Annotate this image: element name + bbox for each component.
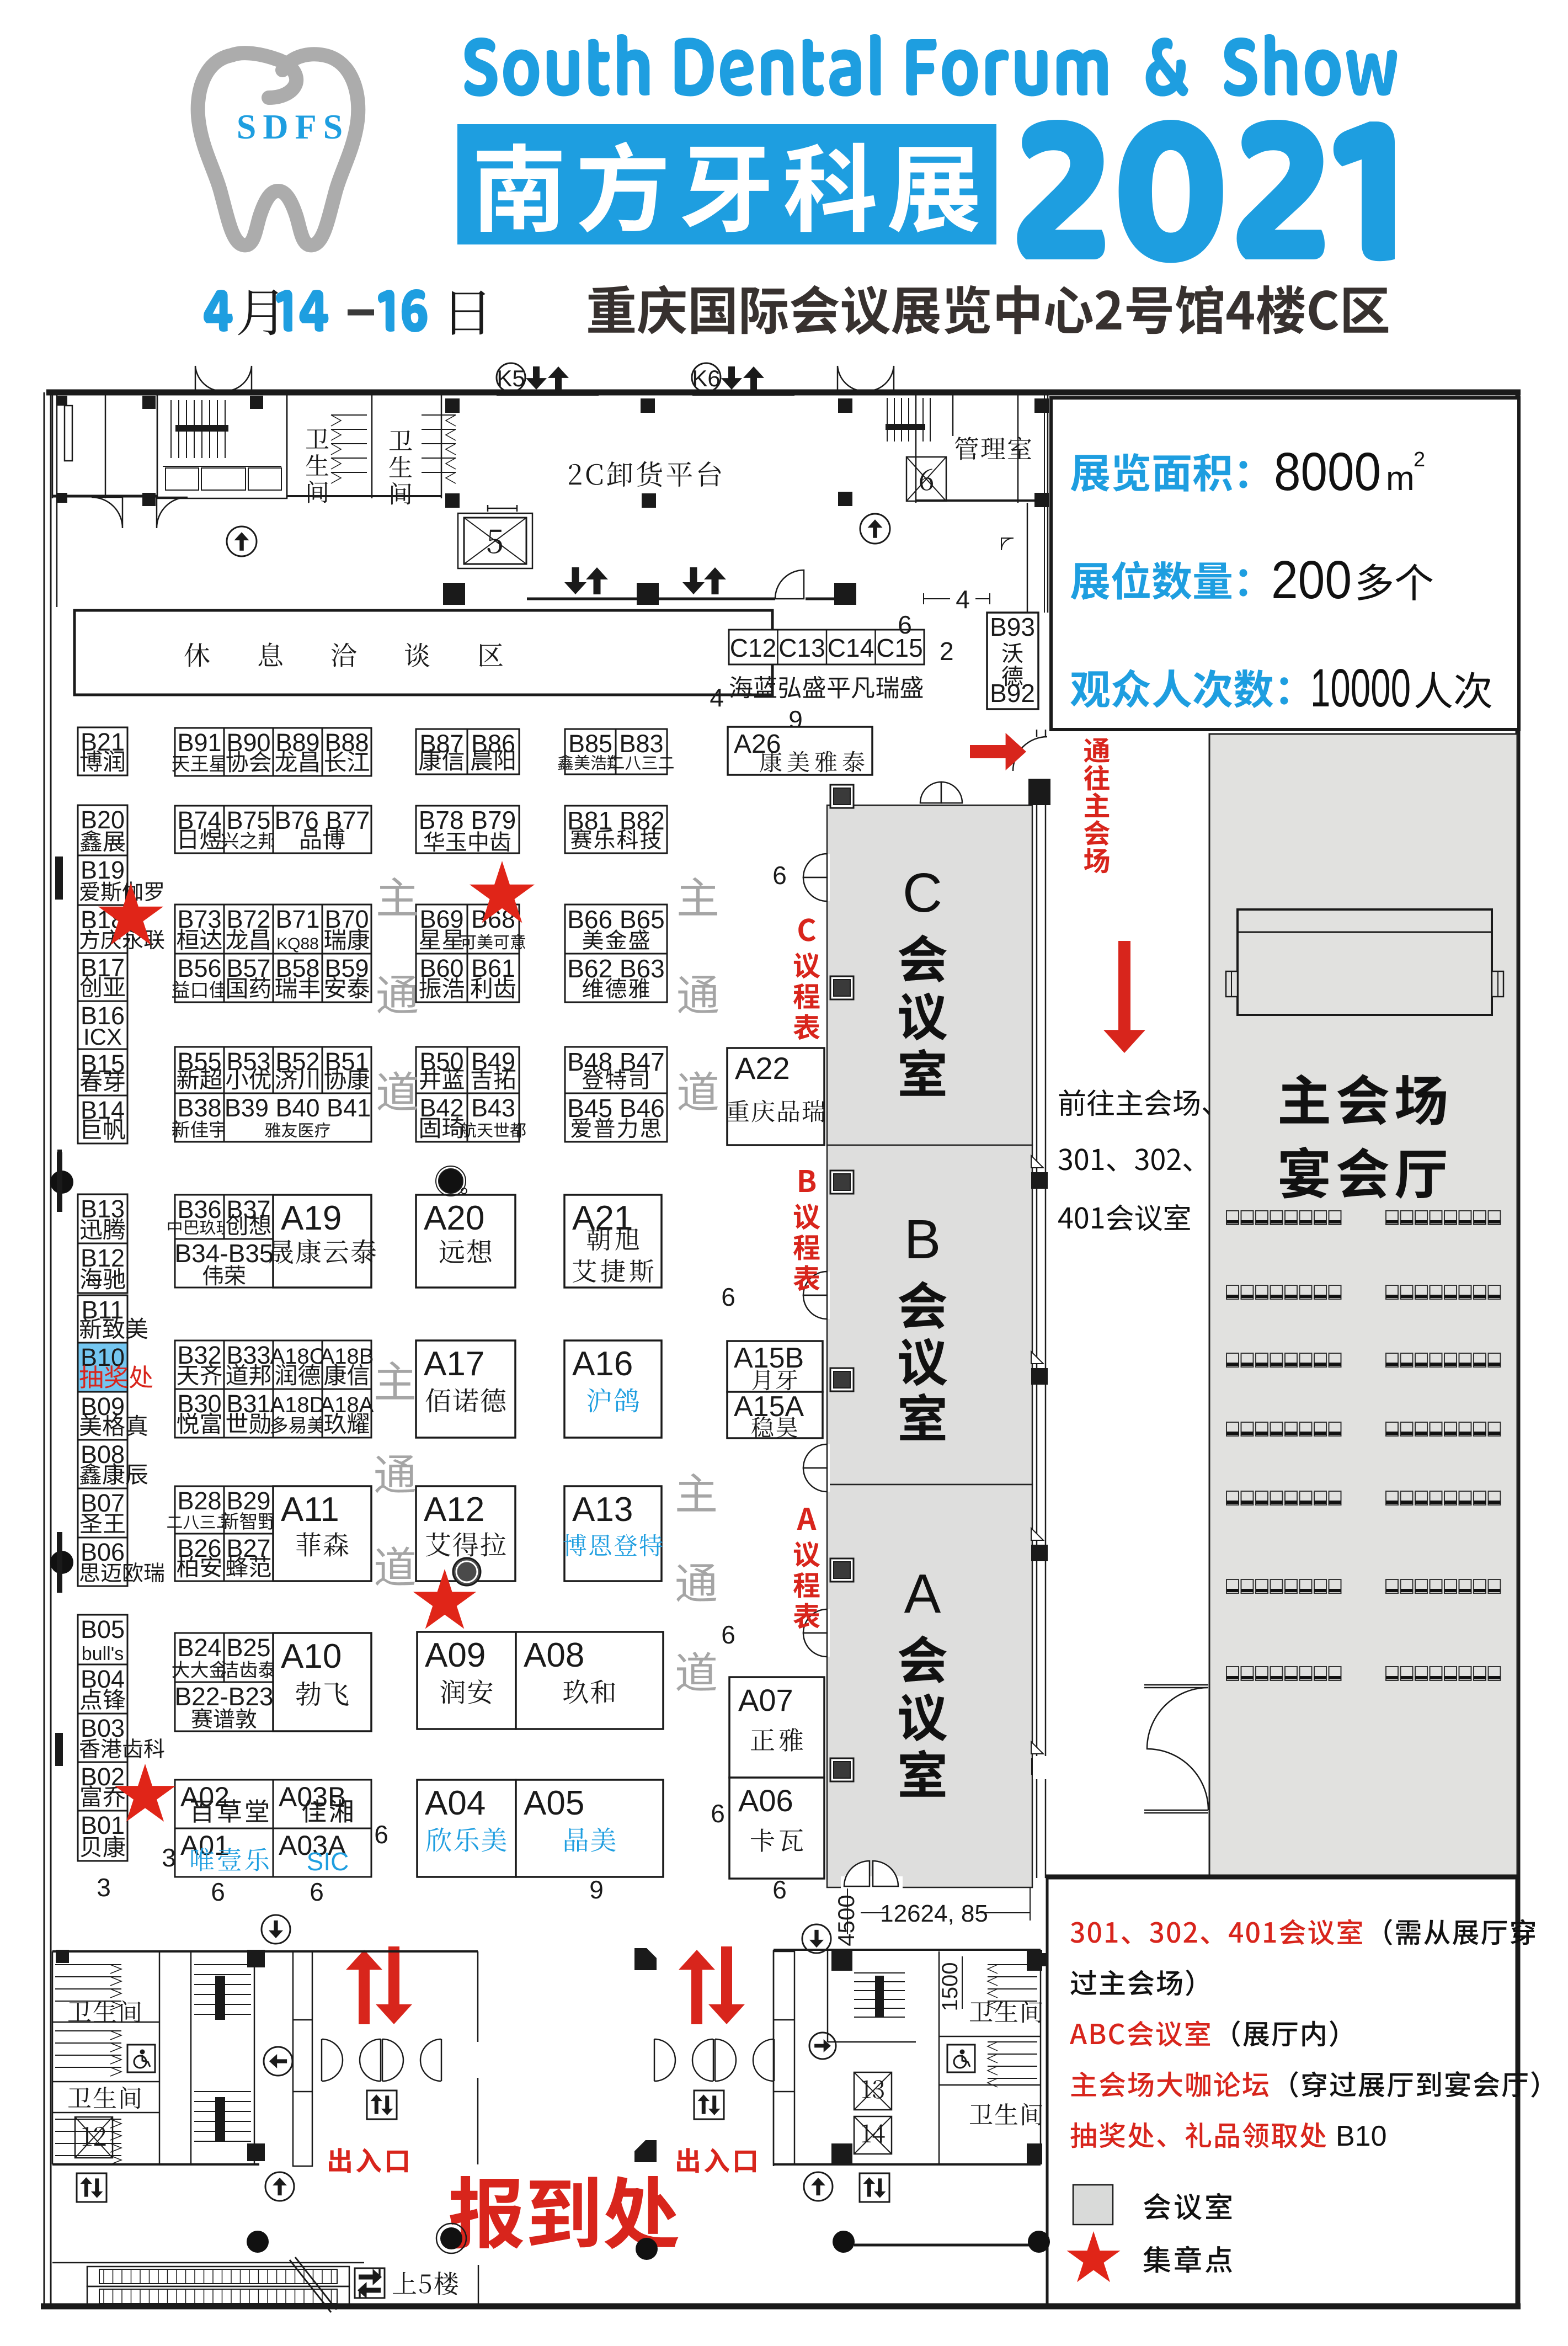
svg-text:4: 4 xyxy=(956,585,970,614)
svg-text:A10: A10 xyxy=(281,1637,342,1675)
svg-text:4: 4 xyxy=(710,683,724,712)
svg-text:200: 200 xyxy=(1271,550,1352,610)
svg-text:A08: A08 xyxy=(524,1636,584,1674)
svg-text:B05: B05 xyxy=(81,1615,125,1643)
svg-text:B32: B32 xyxy=(177,1341,221,1369)
svg-text:B91: B91 xyxy=(177,728,221,757)
svg-text:6: 6 xyxy=(772,861,787,890)
svg-text:8000: 8000 xyxy=(1274,441,1381,502)
svg-text:10000: 10000 xyxy=(1310,658,1411,718)
svg-text:B56: B56 xyxy=(177,954,221,982)
svg-text:B62 B63: B62 B63 xyxy=(567,954,664,983)
svg-text:A15B: A15B xyxy=(734,1342,804,1374)
svg-text:B24: B24 xyxy=(177,1634,221,1662)
svg-text:A18D: A18D xyxy=(270,1393,325,1417)
svg-text:B59: B59 xyxy=(324,954,369,982)
svg-text:B04: B04 xyxy=(81,1665,125,1693)
svg-text:6: 6 xyxy=(721,1620,735,1649)
svg-text:B73: B73 xyxy=(177,905,221,933)
svg-text:B53: B53 xyxy=(226,1047,270,1076)
svg-text:A13: A13 xyxy=(572,1491,633,1529)
svg-text:B83: B83 xyxy=(619,730,663,758)
svg-text:2: 2 xyxy=(1414,448,1425,471)
svg-text:B09: B09 xyxy=(81,1392,125,1421)
svg-text:1500: 1500 xyxy=(938,1962,962,2012)
svg-text:6: 6 xyxy=(898,610,912,639)
svg-text:A19: A19 xyxy=(281,1199,342,1237)
svg-text:A07: A07 xyxy=(738,1683,793,1717)
svg-text:B08: B08 xyxy=(81,1440,125,1469)
svg-text:B92: B92 xyxy=(990,679,1035,707)
svg-text:B85: B85 xyxy=(568,730,612,758)
svg-text:A21: A21 xyxy=(572,1199,633,1237)
svg-text:B38: B38 xyxy=(177,1094,221,1122)
svg-text:m: m xyxy=(1386,460,1415,498)
svg-text:6: 6 xyxy=(310,1877,324,1906)
svg-text:B90: B90 xyxy=(226,728,270,757)
svg-text:A11: A11 xyxy=(281,1491,339,1529)
svg-text:ICX: ICX xyxy=(83,1024,122,1050)
svg-text:B93: B93 xyxy=(990,613,1035,641)
svg-text:A20: A20 xyxy=(424,1199,484,1237)
svg-text:A03B: A03B xyxy=(279,1781,346,1812)
svg-text:B01: B01 xyxy=(81,1811,125,1839)
svg-text:B33: B33 xyxy=(226,1341,270,1369)
svg-text:A04: A04 xyxy=(425,1784,486,1822)
svg-text:B36: B36 xyxy=(177,1195,221,1223)
svg-text:6: 6 xyxy=(711,1799,725,1828)
svg-text:A22: A22 xyxy=(735,1051,790,1086)
svg-text:C12: C12 xyxy=(730,634,776,662)
svg-text:B69: B69 xyxy=(419,905,463,933)
svg-text:B22-B23: B22-B23 xyxy=(174,1682,273,1711)
svg-text:B34-B35: B34-B35 xyxy=(174,1239,273,1268)
svg-text:B76 B77: B76 B77 xyxy=(275,806,370,834)
svg-text:6: 6 xyxy=(374,1820,388,1849)
svg-text:C: C xyxy=(903,862,942,924)
svg-text:K5: K5 xyxy=(497,365,525,391)
svg-text:B29: B29 xyxy=(226,1487,270,1515)
svg-text:12624, 85: 12624, 85 xyxy=(880,1900,988,1927)
svg-text:B71: B71 xyxy=(275,905,319,933)
svg-text:B61: B61 xyxy=(471,954,515,982)
svg-text:A18B: A18B xyxy=(320,1344,374,1369)
svg-text:B39 B40 B41: B39 B40 B41 xyxy=(225,1094,371,1122)
svg-text:A12: A12 xyxy=(424,1491,484,1529)
svg-text:B70: B70 xyxy=(324,905,369,933)
svg-text:B58: B58 xyxy=(275,954,319,982)
svg-text:B06: B06 xyxy=(81,1538,125,1566)
svg-text:A16: A16 xyxy=(572,1345,633,1383)
svg-text:B26: B26 xyxy=(177,1534,221,1562)
svg-text:B78 B79: B78 B79 xyxy=(419,806,516,834)
svg-text:C14: C14 xyxy=(828,634,874,662)
svg-text:B43: B43 xyxy=(471,1094,515,1122)
svg-text:B72: B72 xyxy=(226,905,270,933)
svg-text:3: 3 xyxy=(97,1873,111,1902)
svg-text:C13: C13 xyxy=(778,634,825,662)
svg-text:3: 3 xyxy=(162,1843,176,1872)
svg-text:B07: B07 xyxy=(81,1489,125,1517)
svg-text:SIC: SIC xyxy=(307,1847,349,1876)
svg-text:B28: B28 xyxy=(177,1487,221,1515)
svg-text:A17: A17 xyxy=(424,1345,484,1383)
svg-text:B75: B75 xyxy=(226,806,270,834)
svg-text:9: 9 xyxy=(589,1875,604,1904)
svg-text:6: 6 xyxy=(721,1283,735,1311)
svg-text:A06: A06 xyxy=(738,1783,793,1818)
svg-text:B25: B25 xyxy=(226,1634,270,1662)
svg-text:K6: K6 xyxy=(692,365,720,391)
svg-text:B88: B88 xyxy=(324,728,369,757)
svg-text:SDFS: SDFS xyxy=(237,107,350,146)
svg-text:B10: B10 xyxy=(1336,2120,1387,2152)
svg-text:A: A xyxy=(904,1563,941,1625)
svg-text:6: 6 xyxy=(211,1877,225,1906)
svg-text:B12: B12 xyxy=(81,1244,125,1272)
svg-text:B30: B30 xyxy=(177,1390,221,1418)
svg-text:B45 B46: B45 B46 xyxy=(567,1094,664,1123)
svg-text:B03: B03 xyxy=(81,1714,125,1742)
svg-text:A09: A09 xyxy=(425,1636,486,1674)
svg-text:4500: 4500 xyxy=(833,1895,859,1946)
svg-text:A05: A05 xyxy=(524,1784,584,1822)
svg-text:B19: B19 xyxy=(81,856,125,884)
svg-text:6: 6 xyxy=(772,1875,787,1904)
svg-text:A18C: A18C xyxy=(270,1344,325,1369)
svg-text:B: B xyxy=(904,1209,941,1270)
svg-text:2: 2 xyxy=(940,637,954,666)
svg-text:bull's: bull's xyxy=(82,1643,124,1664)
svg-text:B20: B20 xyxy=(81,806,125,834)
svg-text:KQ88: KQ88 xyxy=(276,935,319,953)
